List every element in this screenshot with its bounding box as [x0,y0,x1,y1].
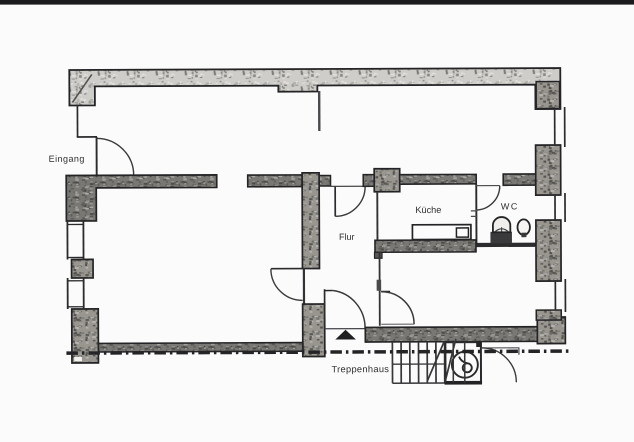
svg-text:Flur: Flur [339,232,355,242]
svg-text:WC: WC [501,201,519,211]
svg-text:Eingang: Eingang [49,154,85,164]
svg-text:Treppenhaus: Treppenhaus [331,364,389,374]
svg-text:Küche: Küche [415,205,441,215]
